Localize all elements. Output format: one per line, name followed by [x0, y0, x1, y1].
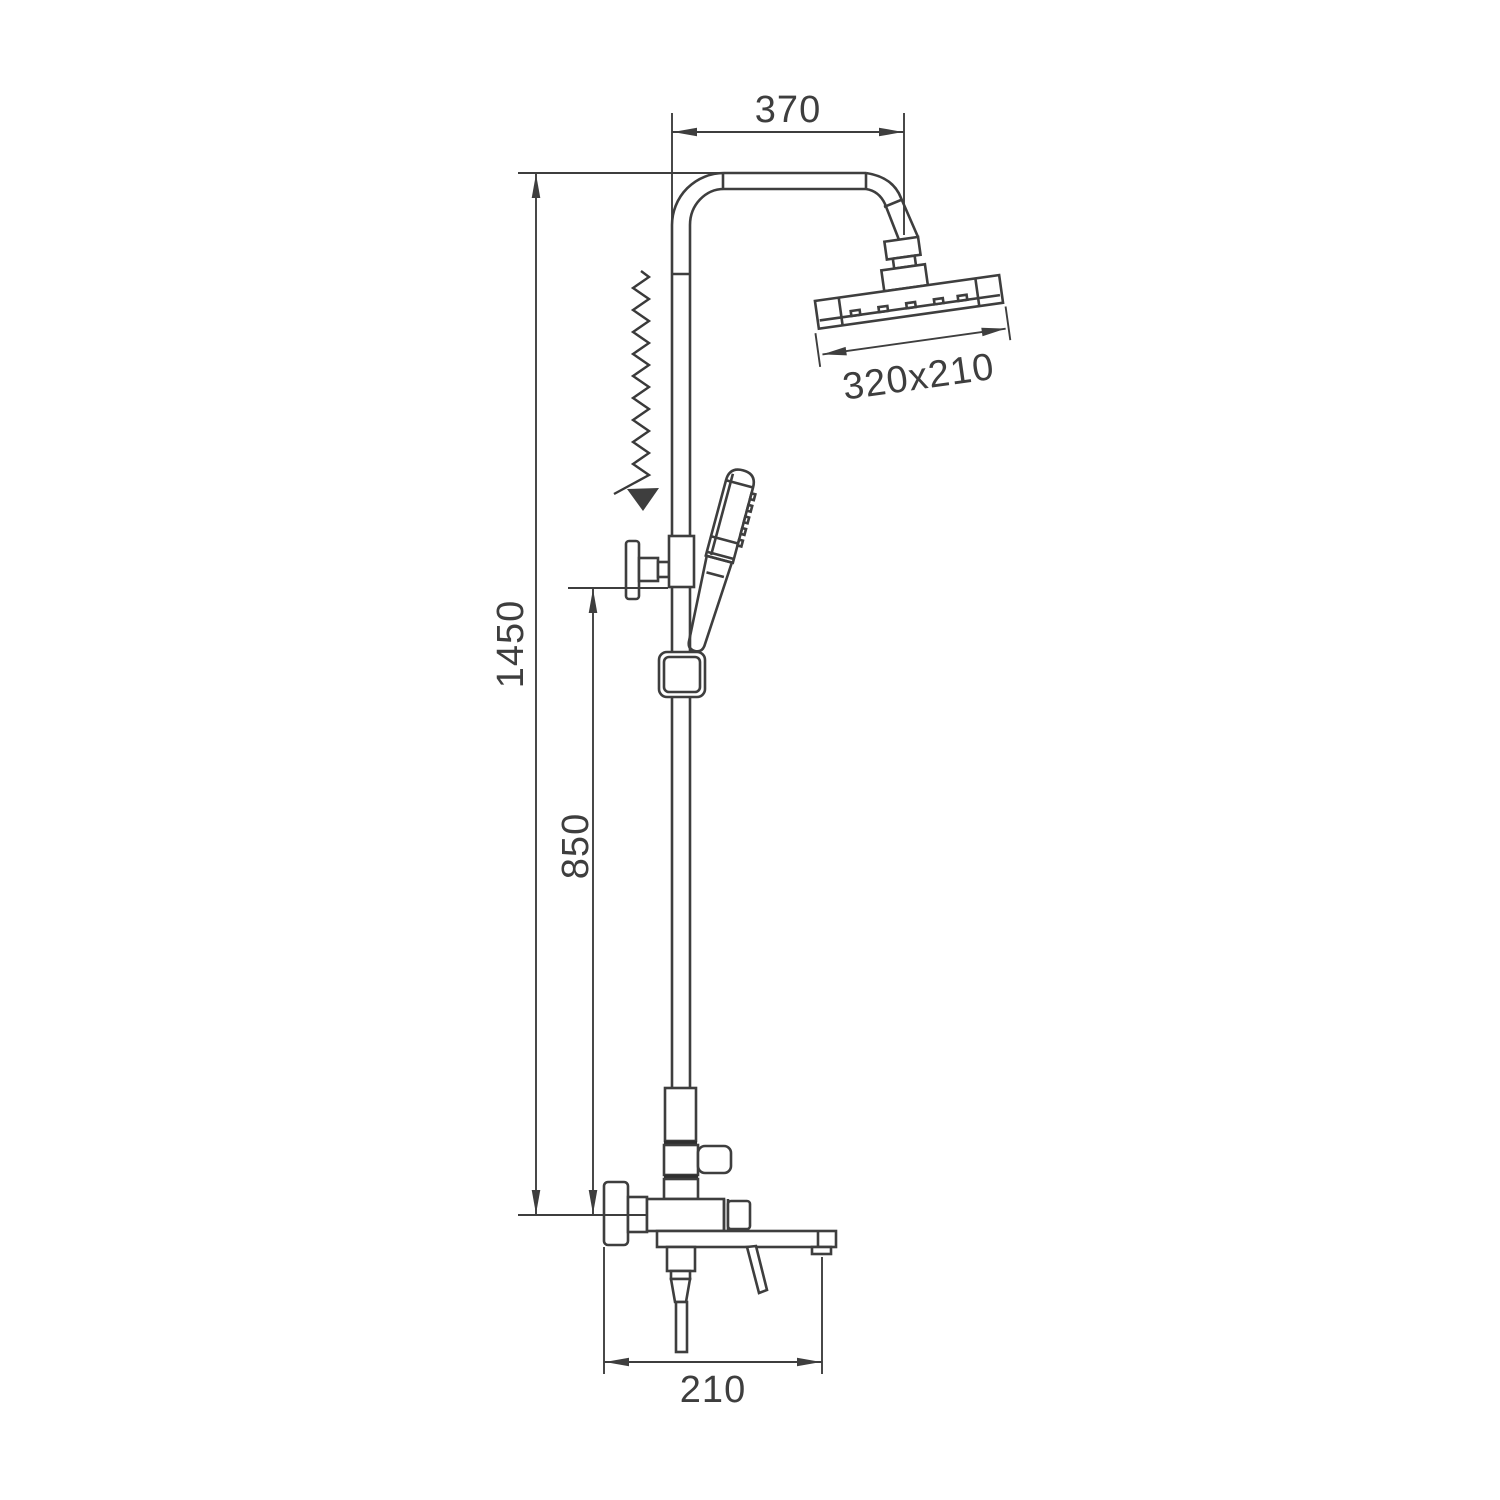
technical-drawing-canvas: 320x210 [0, 0, 1500, 1500]
shower-system-drawing: 320x210 [0, 0, 1500, 1500]
dimension-mixer-height: 850 [555, 588, 668, 1214]
slide-indicator-arrow [614, 271, 659, 511]
dim-label-spout-reach: 210 [680, 1369, 746, 1411]
tub-spout [657, 1231, 836, 1247]
lever-handle [747, 1246, 767, 1293]
dim-label-mixer-height: 850 [555, 813, 597, 879]
mixer-valve-body [647, 1199, 724, 1231]
slider-block [669, 536, 694, 587]
dim-label-arm-reach: 370 [755, 89, 821, 131]
outlet-taper [671, 1279, 690, 1302]
spout-nozzle [812, 1247, 831, 1254]
valve-neck [664, 1179, 698, 1199]
dimension-spout-reach: 210 [604, 1247, 822, 1411]
bracket-arm [639, 558, 658, 581]
dimension-arm-reach: 370 [672, 89, 904, 235]
wall-plate [604, 1182, 628, 1245]
hand-shower-holder [659, 652, 705, 697]
rain-shower-head: 320x210 [804, 226, 1016, 411]
mixer-assembly [604, 1088, 836, 1352]
down-arrowhead [627, 488, 659, 511]
diverter-knob [698, 1146, 731, 1173]
valve-end-cap [728, 1201, 750, 1229]
dim-label-total-height: 1450 [490, 600, 532, 689]
wall-bracket [626, 536, 694, 599]
pipe-sleeve [665, 1088, 696, 1141]
outlet-tube [676, 1302, 687, 1352]
diverter-body [664, 1145, 698, 1175]
dim-label-head-size: 320x210 [840, 346, 997, 409]
outlet-block [667, 1247, 695, 1271]
bracket-arm-step [658, 562, 669, 577]
shower-arm [672, 173, 918, 246]
bracket-flange [626, 541, 639, 599]
